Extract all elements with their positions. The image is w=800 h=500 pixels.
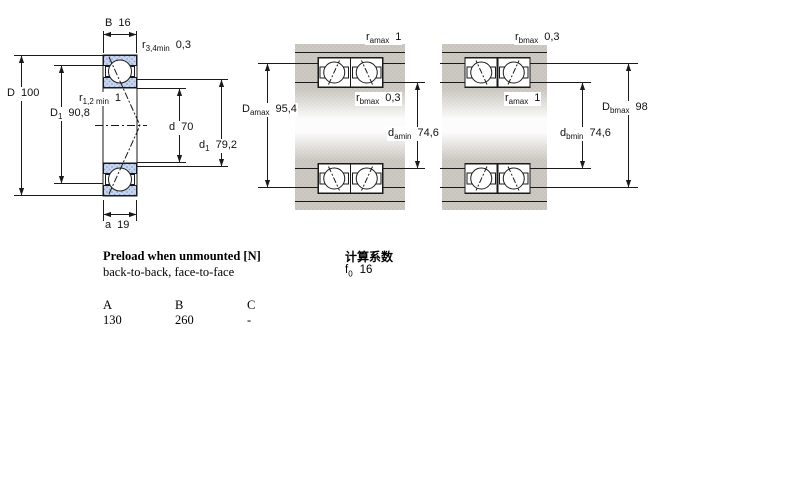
preload-subtitle: back-to-back, face-to-face bbox=[103, 265, 234, 280]
preload-value-a: 130 bbox=[103, 313, 175, 328]
bearing-cell bbox=[498, 164, 530, 193]
bearing-cell bbox=[319, 58, 351, 87]
calc-factors-title: 计算系数 bbox=[345, 248, 393, 265]
preload-title: Preload when unmounted [N] bbox=[103, 249, 261, 264]
dim-label-d: d70 bbox=[168, 121, 194, 135]
dim-label-B: B16 bbox=[104, 17, 132, 31]
dim-label-D1: D190,8 bbox=[49, 107, 91, 121]
dim-label-damin: damin74,6 bbox=[387, 127, 440, 141]
bearing-cell bbox=[351, 58, 383, 87]
bearing-dimension-drawing: B16 r3,4min0,3 D100 r1,2 min1 D190,8 d70… bbox=[0, 0, 800, 500]
dim-label-r12min: r1,2 min1 bbox=[78, 92, 122, 106]
bearing-cell bbox=[465, 58, 497, 87]
single-bearing-diagram bbox=[14, 31, 228, 221]
dim-label-dbmin: dbmin74,6 bbox=[559, 127, 612, 141]
bearing-cell bbox=[319, 164, 351, 193]
bearing-cell bbox=[465, 164, 497, 193]
dim-label-a: a19 bbox=[104, 219, 130, 233]
bearing-cell bbox=[498, 58, 530, 87]
dim-label-ramax-f2f: ramax1 bbox=[504, 92, 541, 106]
bearing-cell bbox=[351, 164, 383, 193]
dim-label-Dbmax: Dbmax98 bbox=[601, 101, 649, 115]
dim-label-rbmax-f2f: rbmax0,3 bbox=[514, 31, 561, 45]
calc-factor-f0: f016 bbox=[345, 264, 372, 278]
preload-value-b: 260 bbox=[175, 313, 247, 328]
dim-label-ramax-b2b: ramax1 bbox=[365, 31, 402, 45]
preload-value-row: 130260- bbox=[103, 311, 319, 329]
dim-label-d1: d179,2 bbox=[198, 139, 238, 153]
dim-label-r34min: r3,4min0,3 bbox=[141, 39, 192, 53]
dim-label-rbmax-b2b: rbmax0,3 bbox=[355, 92, 402, 106]
dim-label-D: D100 bbox=[6, 87, 40, 101]
bearing-section-bottom bbox=[103, 163, 137, 196]
bearing-section-top bbox=[103, 55, 137, 88]
preload-value-c: - bbox=[247, 313, 319, 328]
dim-label-Damax: Damax95,4 bbox=[241, 103, 298, 117]
